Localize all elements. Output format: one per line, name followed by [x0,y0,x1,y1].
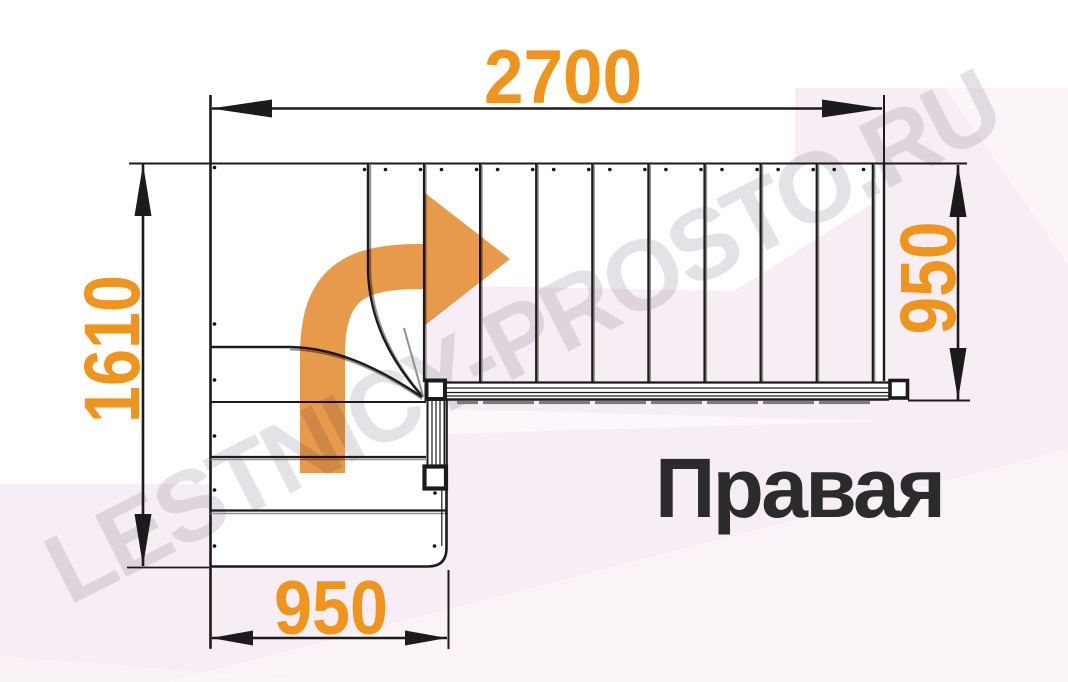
svg-text:2700: 2700 [484,35,642,120]
svg-text:1610: 1610 [67,275,156,423]
svg-text:950: 950 [883,222,972,335]
svg-text:Правая: Правая [655,441,946,535]
svg-text:950: 950 [274,566,388,651]
